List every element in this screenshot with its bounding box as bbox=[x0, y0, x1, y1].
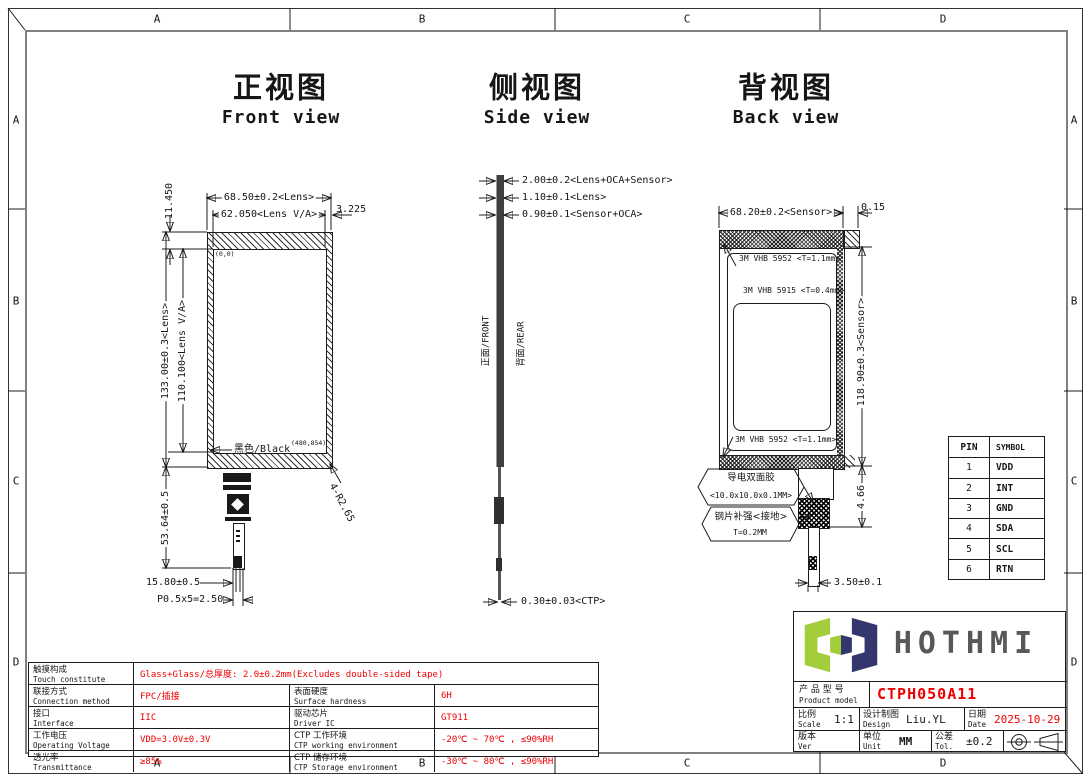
dim-sensor-oca-thickness: 0.90±0.1<Sensor+OCA> bbox=[522, 210, 642, 220]
label-origin: (0,0) bbox=[215, 251, 235, 258]
scale-value: 1:1 bbox=[834, 714, 854, 725]
dim-sensor-height: 118.90±0.3<Sensor> bbox=[857, 296, 867, 408]
spec-label-en: Interface bbox=[33, 719, 133, 728]
hothmi-logo-mark bbox=[801, 616, 881, 674]
ver-label-cn: 版本 bbox=[798, 733, 816, 742]
spec-value: Glass+Glass/总厚度: 2.0±0.2mm(Excludes doub… bbox=[133, 663, 598, 684]
spec-label-cn: 接口 bbox=[33, 707, 133, 719]
date-label-en: Date bbox=[968, 721, 986, 729]
label-cond-tape-size: <10.0x10.0x0.1MM> bbox=[710, 492, 792, 500]
spec-value: FPC/插接 bbox=[133, 685, 289, 706]
label-tape-inner: 3M VHB 5915 <T=0.4mm> bbox=[743, 287, 844, 295]
dim-ctp-thickness: 0.30±0.03<CTP> bbox=[521, 597, 605, 607]
spec-value: GT911 bbox=[434, 707, 598, 728]
pin-symbol: RTN bbox=[989, 560, 1044, 579]
tol-label-cn: 公差 bbox=[935, 733, 953, 742]
pin-row: 2INT bbox=[949, 478, 1044, 498]
pin-number: 6 bbox=[949, 560, 989, 579]
spec-row: 接口 Interface IIC 驱动芯片 Driver IC GT911 bbox=[29, 706, 598, 728]
spec-value: VDD=3.0V±0.3V bbox=[133, 729, 289, 750]
pin-symbol: SDA bbox=[989, 519, 1044, 538]
label-steel-plate: 钢片补强<接地> bbox=[715, 512, 788, 522]
unit-label-cn: 单位 bbox=[863, 733, 881, 742]
product-model-label-cn: 产 品 型 号 bbox=[799, 686, 844, 695]
projection-symbol-icon bbox=[1006, 732, 1064, 752]
label-rear-face: 背面/REAR bbox=[518, 321, 527, 366]
dim-sensor-width: 68.20±0.2<Sensor> bbox=[728, 208, 834, 218]
symbol-col-header: SYMBOL bbox=[989, 437, 1044, 457]
pin-number: 1 bbox=[949, 458, 989, 477]
pin-symbol: VDD bbox=[989, 458, 1044, 477]
label-cond-tape: 导电双面胶 bbox=[727, 473, 775, 483]
label-resolution: (480,854) bbox=[291, 440, 326, 447]
design-label-cn: 设计制图 bbox=[863, 711, 899, 720]
side-view-title-cn: 侧视图 bbox=[489, 74, 585, 103]
spec-label: 接口 Interface bbox=[29, 707, 133, 728]
spec-label-cn: 工作电压 bbox=[33, 729, 133, 741]
spec-row: 联接方式 Connection method FPC/插接 表面硬度 Surfa… bbox=[29, 684, 598, 706]
spec-label-en: Operating Voltage bbox=[33, 741, 133, 750]
spec-label: 透光率 Transmittance bbox=[29, 751, 133, 772]
spec-label-cn: 透光率 bbox=[33, 751, 133, 763]
back-view-title-en: Back view bbox=[733, 109, 840, 127]
label-black-bezel: 黑色/Black bbox=[234, 445, 290, 455]
unit-label-en: Unit bbox=[863, 743, 881, 751]
product-model-value: CTPH050A11 bbox=[877, 687, 977, 702]
spec-row: 触摸构成 Touch constitute Glass+Glass/总厚度: 2… bbox=[29, 663, 598, 684]
spec-label: 工作电压 Operating Voltage bbox=[29, 729, 133, 750]
dim-va-width: 62.050<Lens V/A> bbox=[219, 210, 319, 220]
design-value: Liu.YL bbox=[906, 714, 946, 725]
spec-label-cn: 表面硬度 bbox=[294, 685, 434, 697]
front-view-dimensions bbox=[162, 193, 352, 606]
dim-fpc-offset: 15.80±0.5 bbox=[146, 578, 200, 588]
spec-label-en: CTP working environment bbox=[294, 741, 434, 750]
hothmi-logo-text: HOTHMI bbox=[894, 629, 1038, 659]
spec-value: ≥85% bbox=[133, 751, 289, 772]
scale-label-en: Scale bbox=[798, 721, 821, 729]
spec-label-en: Touch constitute bbox=[33, 675, 133, 684]
front-view-title-en: Front view bbox=[222, 109, 340, 127]
back-view-title-cn: 背视图 bbox=[738, 74, 834, 103]
pin-number: 4 bbox=[949, 519, 989, 538]
spec-table: 触摸构成 Touch constitute Glass+Glass/总厚度: 2… bbox=[28, 662, 599, 757]
spec-label: CTP 工作环境 CTP working environment bbox=[289, 729, 434, 750]
dim-lens-height: 133.00±0.3<Lens> bbox=[161, 301, 171, 401]
spec-label-cn: 触摸构成 bbox=[33, 663, 133, 675]
front-view-title-cn: 正视图 bbox=[233, 74, 329, 103]
spec-label-cn: CTP 储存环境 bbox=[294, 751, 434, 763]
date-label-cn: 日期 bbox=[968, 711, 986, 720]
title-block: HOTHMI 产 品 型 号 Product model CTPH050A11 … bbox=[793, 611, 1066, 752]
design-label-en: Design bbox=[863, 721, 890, 729]
engineering-drawing-sheet: A B C D A B C D A B C D A B C D bbox=[0, 0, 1091, 781]
dim-fpc-width: 3.50±0.1 bbox=[834, 578, 882, 588]
dim-edge-offset: 0.15 bbox=[861, 203, 885, 213]
side-view-title-en: Side view bbox=[484, 109, 591, 127]
pin-row: 1VDD bbox=[949, 457, 1044, 477]
spec-label: 触摸构成 Touch constitute bbox=[29, 663, 133, 684]
spec-label: 表面硬度 Surface hardness bbox=[289, 685, 434, 706]
spec-value: IIC bbox=[133, 707, 289, 728]
dim-side-margin: 3.225 bbox=[336, 205, 366, 215]
spec-label-en: Connection method bbox=[33, 697, 133, 706]
label-steel-thickness: T=0.2MM bbox=[733, 529, 767, 537]
dim-fpc-length: 53.64±0.5 bbox=[161, 489, 171, 547]
ver-label-en: Ver bbox=[798, 743, 812, 751]
dim-va-height: 110.100<Lens V/A> bbox=[178, 298, 188, 404]
tol-label-en: Tol. bbox=[935, 743, 953, 751]
pin-table: PIN SYMBOL 1VDD 2INT 3GND 4SDA 5SCL 6RTN bbox=[948, 436, 1045, 580]
label-tape-top: 3M VHB 5952 <T=1.1mm> bbox=[739, 255, 840, 263]
spec-label-en: Surface hardness bbox=[294, 697, 434, 706]
unit-value: MM bbox=[899, 736, 912, 747]
pin-symbol: INT bbox=[989, 479, 1044, 498]
dim-lens-width: 68.50±0.2<Lens> bbox=[222, 193, 316, 203]
tol-value: ±0.2 bbox=[966, 736, 993, 747]
spec-label-cn: 驱动芯片 bbox=[294, 707, 434, 719]
spec-value: -30℃ ~ 80℃ , ≤90%RH bbox=[434, 751, 598, 772]
pin-symbol: SCL bbox=[989, 539, 1044, 558]
spec-value: -20℃ ~ 70℃ , ≤90%RH bbox=[434, 729, 598, 750]
label-tape-bottom: 3M VHB 5952 <T=1.1mm> bbox=[735, 436, 836, 444]
dim-top-margin: 11.450 bbox=[165, 183, 175, 219]
dim-lens-thickness: 1.10±0.1<Lens> bbox=[522, 193, 606, 203]
spec-row: 工作电压 Operating Voltage VDD=3.0V±0.3V CTP… bbox=[29, 728, 598, 750]
spec-row: 透光率 Transmittance ≥85% CTP 储存环境 CTP Stor… bbox=[29, 750, 598, 772]
product-model-label-en: Product model bbox=[799, 697, 858, 705]
spec-label-cn: 联接方式 bbox=[33, 685, 133, 697]
spec-label-en: Transmittance bbox=[33, 763, 133, 772]
pin-row: 6RTN bbox=[949, 559, 1044, 579]
spec-label: 驱动芯片 Driver IC bbox=[289, 707, 434, 728]
pin-number: 2 bbox=[949, 479, 989, 498]
dim-fpc-pitch: P0.5x5=2.50 bbox=[157, 595, 223, 605]
pin-table-header: PIN SYMBOL bbox=[949, 437, 1044, 457]
pin-symbol: GND bbox=[989, 499, 1044, 518]
spec-label: 联接方式 Connection method bbox=[29, 685, 133, 706]
pin-number: 3 bbox=[949, 499, 989, 518]
pin-row: 5SCL bbox=[949, 538, 1044, 558]
pin-row: 4SDA bbox=[949, 518, 1044, 538]
spec-label-en: Driver IC bbox=[294, 719, 434, 728]
dim-tail-gap: 4.66 bbox=[857, 483, 867, 511]
pin-number: 5 bbox=[949, 539, 989, 558]
label-front-face: 正面/FRONT bbox=[483, 316, 492, 367]
scale-label-cn: 比例 bbox=[798, 711, 816, 720]
spec-label-en: CTP Storage environment bbox=[294, 763, 434, 772]
spec-value: 6H bbox=[434, 685, 598, 706]
spec-label-cn: CTP 工作环境 bbox=[294, 729, 434, 741]
pin-col-header: PIN bbox=[949, 437, 989, 457]
dim-total-thickness: 2.00±0.2<Lens+OCA+Sensor> bbox=[522, 176, 673, 186]
back-view-dimensions bbox=[698, 206, 872, 592]
pin-row: 3GND bbox=[949, 498, 1044, 518]
date-value: 2025-10-29 bbox=[994, 714, 1060, 725]
spec-label: CTP 储存环境 CTP Storage environment bbox=[289, 751, 434, 772]
side-view-dimensions bbox=[479, 181, 519, 602]
